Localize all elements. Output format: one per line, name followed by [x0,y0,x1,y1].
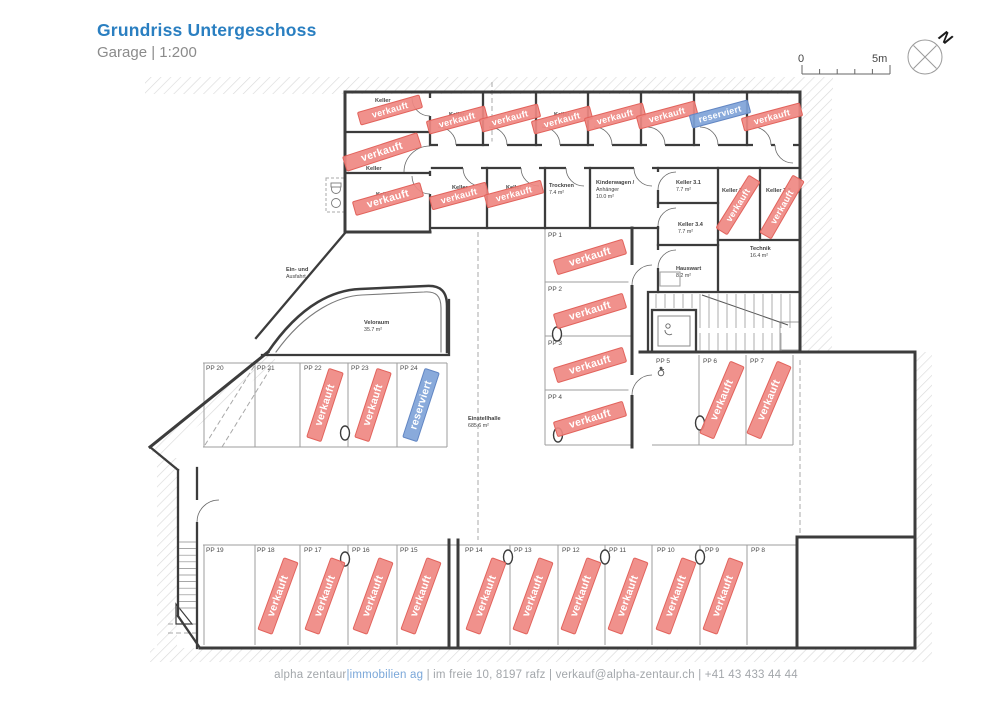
svg-text:verkauft: verkauft [360,140,405,165]
svg-text:verkauft: verkauft [568,407,613,431]
doors-layer [194,98,794,522]
parking-spot-label: PP 15 [400,547,418,554]
parking-spot-label: PP 13 [514,547,532,554]
parking-spot-label: PP 6 [703,358,717,365]
wheelchair-icon [658,367,664,376]
stamp-sold: verkauft [553,293,626,328]
stamp-sold: verkauft [258,558,298,635]
room-label: Keller [366,166,382,172]
stamp-sold: verkauft [553,239,626,274]
parking-spot-label: PP 22 [304,365,322,372]
stamp-sold: verkauft [760,175,804,239]
stamp-sold: verkauft [426,106,487,134]
staircase [656,294,790,351]
wc-fixtures [331,183,341,208]
stamp-sold: verkauft [561,558,601,635]
footer-company-suffix: |immobilien ag [346,669,423,681]
stamp-sold: verkauft [741,103,802,131]
stamp-sold: verkauft [353,558,393,635]
room-label: Keller 3.47.7 m² [678,222,704,235]
parking-spot-label: PP 14 [465,547,483,554]
room-label: Kinderwagen /Anhänger10.0 m² [596,180,635,200]
stamp-reserved: reserviert [403,368,440,441]
svg-text:verkauft: verkauft [366,187,411,211]
svg-text:reserviert: reserviert [697,103,742,124]
elevator [652,310,696,352]
parking-spot-label: PP 7 [750,358,764,365]
scale-bar: 0 5m [798,53,890,74]
stamp-sold: verkauft [747,361,791,439]
stamp-sold: verkauft [656,558,696,635]
parking-spot-label: PP 17 [304,547,322,554]
svg-text:verkauft: verkauft [473,573,499,618]
parking-spot-label: PP 8 [751,547,765,554]
floor-plan: Trocknen7.4 m²Kinderwagen /Anhänger10.0 … [0,0,1000,706]
stamp-sold: verkauft [513,558,553,635]
parking-spot-label: PP 12 [562,547,580,554]
stamp-sold: verkauft [479,104,540,132]
stamp-sold: verkauft [352,183,423,216]
stamp-sold: verkauft [553,347,626,382]
stamp-sold: verkauft [355,368,392,441]
footer-contact: | im freie 10, 8197 rafz | verkauf@alpha… [423,669,798,681]
parking-spot-label: PP 23 [351,365,369,372]
svg-text:verkauft: verkauft [313,382,338,427]
parking-spot-label: PP 20 [206,365,224,372]
stamp-sold: verkauft [636,101,697,129]
parking-spot-label: PP 24 [400,365,418,372]
svg-text:verkauft: verkauft [408,573,434,618]
stamp-reserved: reserviert [689,100,750,128]
room-label: Trocknen7.4 m² [549,183,574,196]
svg-text:verkauft: verkauft [663,573,689,618]
room-label: Keller 3.17.7 m² [676,180,701,193]
parking-spot-label: PP 21 [257,365,275,372]
room-label: Technik16.4 m² [750,246,772,259]
parking-spot-label: PP 16 [352,547,370,554]
stamp-sold: verkauft [553,401,626,436]
footer: alpha zentaur|immobilien ag | im freie 1… [0,669,1000,681]
parking-spot-label: PP 2 [548,286,562,293]
parking-spot-label: PP 5 [656,358,670,365]
svg-text:verkauft: verkauft [568,353,613,377]
stamp-sold: verkauft [307,368,344,441]
parking-spot-labels-layer: PP 1PP 2PP 3PP 4PP 5PP 6PP 7PP 8PP 9PP 1… [206,232,765,554]
parking-spot-label: PP 19 [206,547,224,554]
footer-company: alpha zentaur [274,669,346,681]
stamp-sold: verkauft [703,558,743,635]
room-label: Veloraum35.7 m² [364,320,389,333]
stamp-sold: verkauft [608,558,648,635]
scale-max-label: 5m [872,53,887,65]
svg-text:verkauft: verkauft [568,245,613,269]
north-compass: N [908,28,955,74]
stamp-sold: verkauft [700,361,744,439]
parking-spot-label: PP 10 [657,547,675,554]
parking-spot-label: PP 9 [705,547,719,554]
stamp-sold: verkauft [466,558,506,635]
stamp-sold: verkauft [716,175,760,234]
svg-text:verkauft: verkauft [265,573,291,618]
stamp-sold: verkauft [531,106,592,134]
parking-spot-label: PP 3 [548,340,562,347]
svg-text:verkauft: verkauft [568,573,594,618]
room-label: Einstellhalle685.6 m² [468,416,501,429]
stamp-sold: verkauft [305,558,345,635]
parking-spot-label: PP 18 [257,547,275,554]
stamp-sold: verkauft [401,558,441,635]
parking-spot-label: PP 11 [609,547,626,554]
parking-spot-label: PP 4 [548,394,562,401]
svg-text:verkauft: verkauft [312,573,338,618]
parking-spot-label: PP 1 [548,232,562,239]
room-label: Ein- undAusfahrt [286,267,309,280]
svg-text:verkauft: verkauft [568,299,613,323]
svg-text:verkauft: verkauft [615,573,641,618]
svg-text:verkauft: verkauft [520,573,546,618]
room-label: Hauswart8.2 m² [676,266,701,279]
scale-zero-label: 0 [798,53,804,65]
svg-text:verkauft: verkauft [361,382,386,427]
svg-text:verkauft: verkauft [360,573,386,618]
svg-text:verkauft: verkauft [710,573,736,618]
svg-text:reserviert: reserviert [407,379,434,431]
stamp-sold: verkauft [343,133,422,171]
